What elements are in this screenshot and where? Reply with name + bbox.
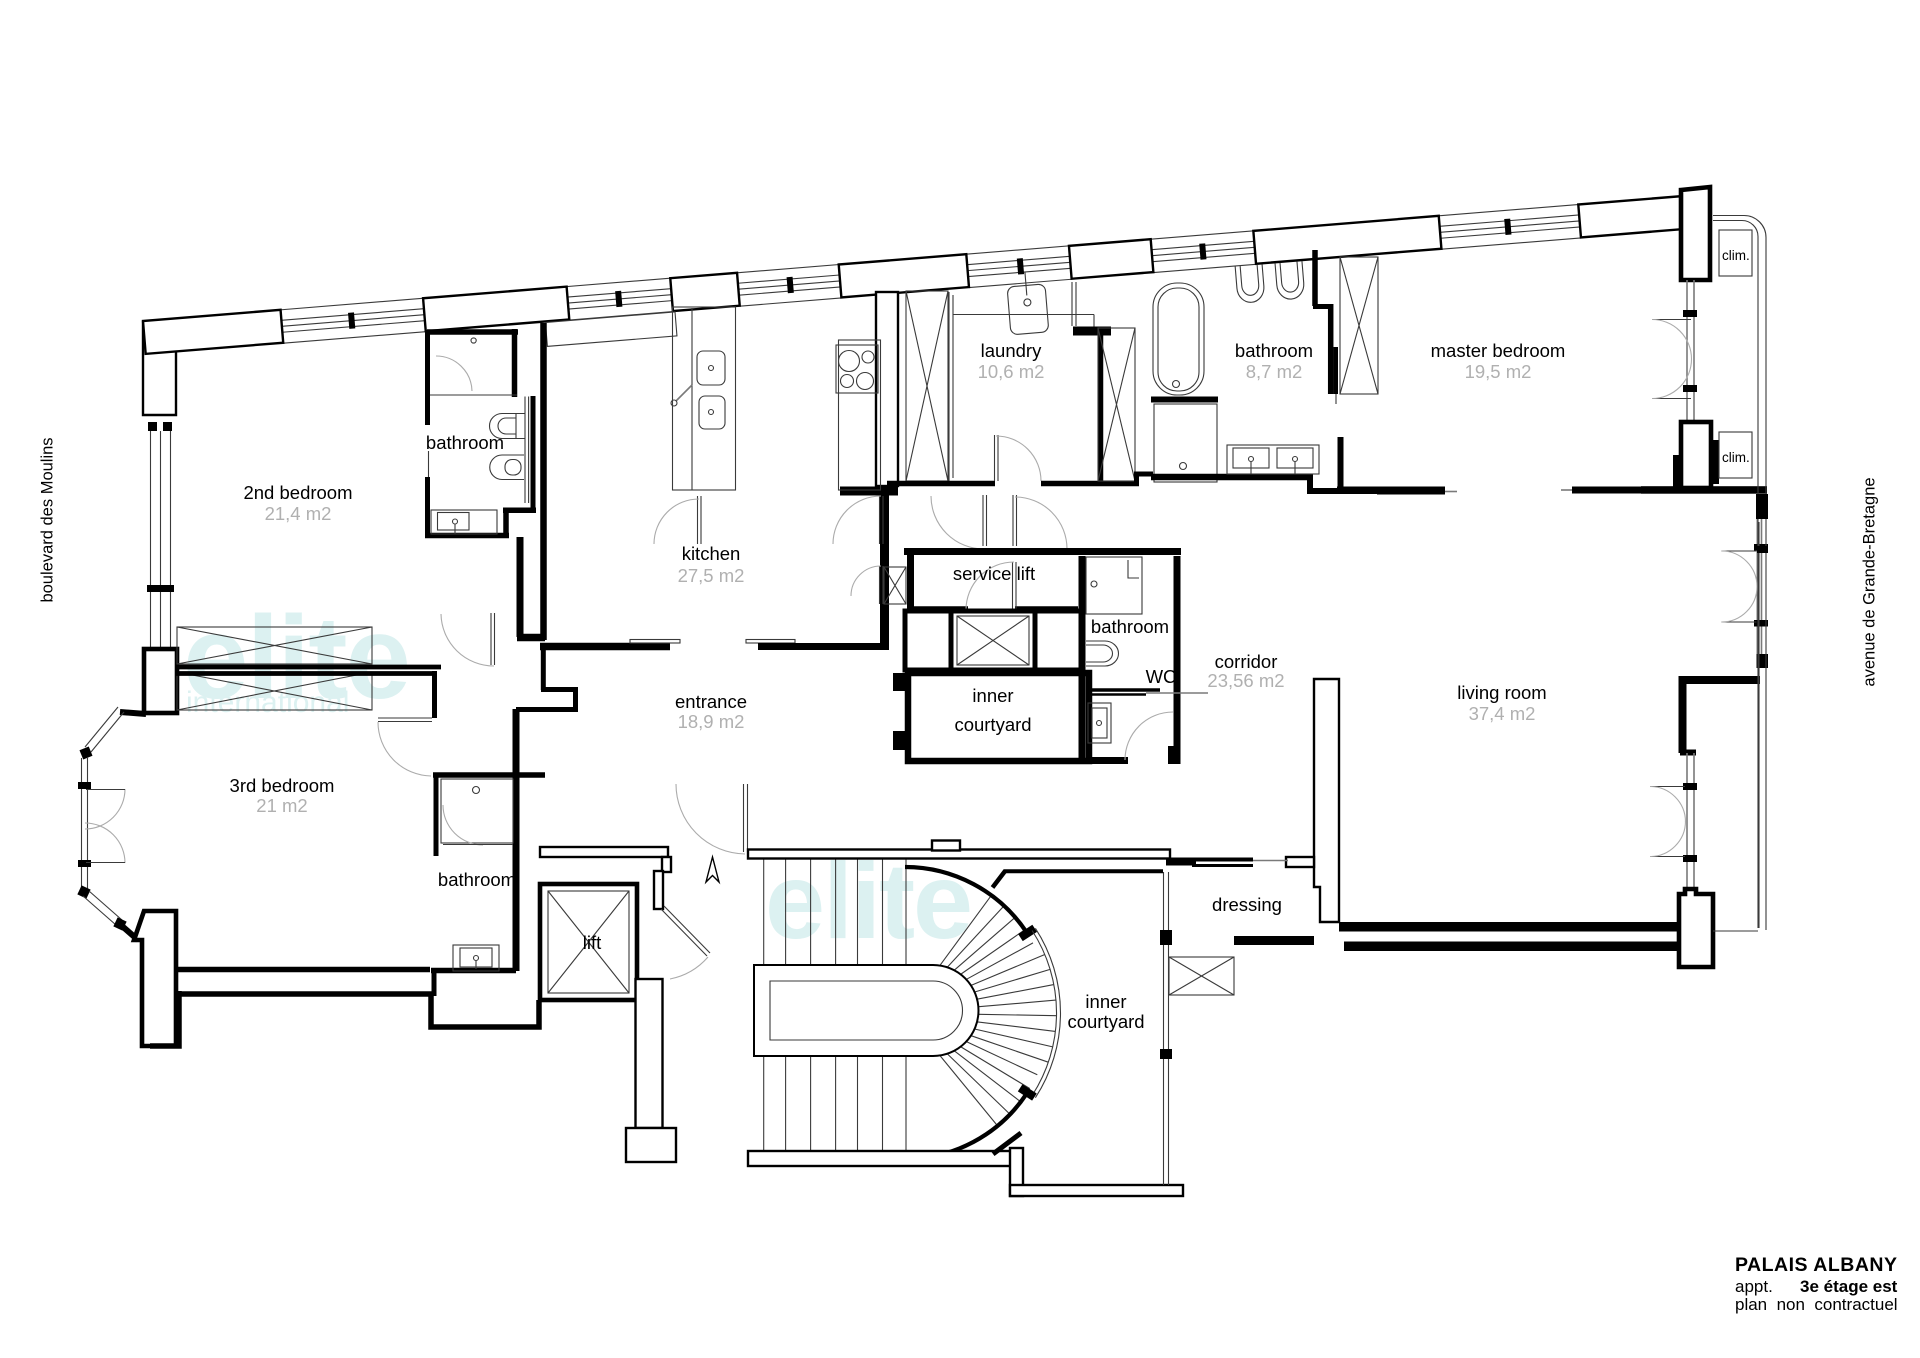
svg-text:21,4 m2: 21,4 m2 [265,503,332,524]
svg-text:boulevard des Moulins: boulevard des Moulins [39,437,57,602]
svg-text:plan non contractuel: plan non contractuel [1735,1295,1898,1314]
svg-text:37,4 m2: 37,4 m2 [1469,703,1536,724]
svg-text:master bedroom: master bedroom [1431,340,1566,361]
svg-text:living room: living room [1457,682,1546,703]
svg-text:inner: inner [1085,991,1126,1012]
svg-text:clim.: clim. [1722,450,1750,465]
svg-text:19,5 m2: 19,5 m2 [1465,361,1532,382]
svg-text:service lift: service lift [953,563,1035,584]
svg-text:appt.: appt. [1735,1277,1773,1296]
svg-text:23,56 m2: 23,56 m2 [1207,670,1284,691]
svg-text:avenue de Grande-Bretagne: avenue de Grande-Bretagne [1861,477,1879,686]
svg-text:clim.: clim. [1722,248,1750,263]
svg-text:21 m2: 21 m2 [256,795,307,816]
svg-text:international: international [186,686,349,719]
svg-text:courtyard: courtyard [1067,1011,1144,1032]
svg-text:bathroom: bathroom [426,432,504,453]
svg-text:bathroom: bathroom [1091,616,1169,637]
svg-text:dressing: dressing [1212,894,1282,915]
svg-text:27,5 m2: 27,5 m2 [678,565,745,586]
svg-text:bathroom: bathroom [438,869,516,890]
svg-text:inner: inner [972,685,1013,706]
svg-text:2nd bedroom: 2nd bedroom [243,482,352,503]
svg-text:kitchen: kitchen [682,543,741,564]
svg-text:courtyard: courtyard [954,714,1031,735]
svg-text:laundry: laundry [981,340,1042,361]
svg-text:entrance: entrance [675,691,747,712]
svg-text:8,7 m2: 8,7 m2 [1246,361,1303,382]
svg-text:PALAIS ALBANY: PALAIS ALBANY [1735,1254,1898,1276]
svg-text:corridor: corridor [1215,651,1278,672]
svg-text:bathroom: bathroom [1235,340,1313,361]
svg-text:10,6 m2: 10,6 m2 [978,361,1045,382]
svg-text:lift: lift [583,932,602,953]
svg-text:3e étage est: 3e étage est [1800,1277,1898,1296]
svg-text:18,9 m2: 18,9 m2 [678,711,745,732]
svg-text:WC: WC [1146,666,1177,687]
svg-text:3rd bedroom: 3rd bedroom [230,775,335,796]
